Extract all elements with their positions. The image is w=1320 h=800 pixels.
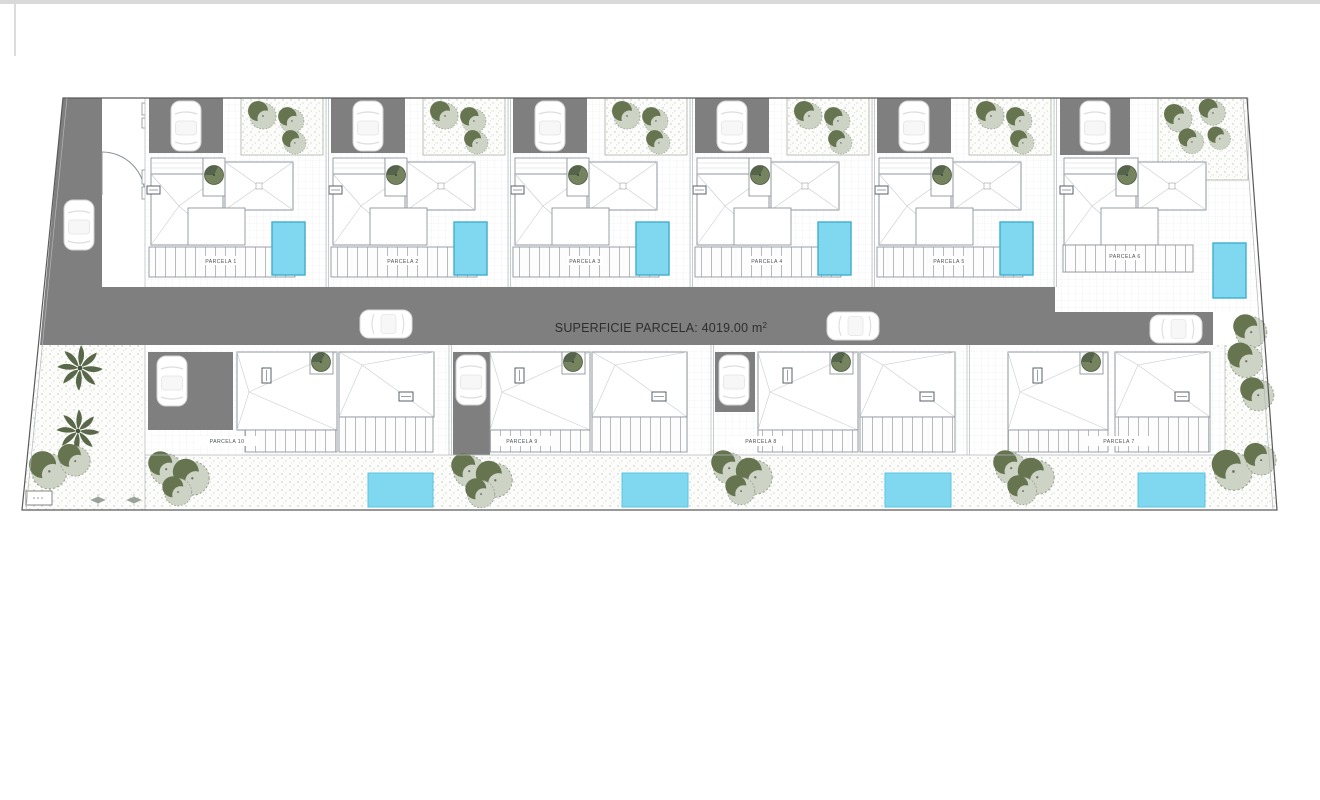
pool bbox=[885, 473, 951, 507]
parcel-1: PARCELA 1 bbox=[145, 98, 327, 287]
parcel-label: PARCELA 2 bbox=[387, 259, 418, 265]
parcel-3: PARCELA 3 bbox=[509, 98, 691, 287]
parcel-2: PARCELA 2 bbox=[327, 98, 509, 287]
gate-swing-arc bbox=[102, 152, 145, 195]
page: SUPERFICIE PARCELA: 4019.00 m2 PARCELA 1… bbox=[0, 0, 1320, 800]
central-road bbox=[145, 287, 1055, 345]
terrace-deck bbox=[1115, 417, 1210, 452]
parcel-label: PARCELA 1 bbox=[205, 259, 236, 265]
car-icon bbox=[1150, 315, 1202, 343]
parcel-label: PARCELA 8 bbox=[745, 439, 776, 445]
parcel-label: PARCELA 5 bbox=[933, 259, 964, 265]
parcel-label: PARCELA 7 bbox=[1103, 439, 1134, 445]
terrace-deck bbox=[860, 417, 955, 452]
site-plan: SUPERFICIE PARCELA: 4019.00 m2 PARCELA 1… bbox=[0, 0, 1320, 800]
pool bbox=[368, 473, 433, 507]
road-area-label: SUPERFICIE PARCELA: 4019.00 m2 bbox=[555, 321, 768, 335]
utility-box bbox=[26, 491, 52, 505]
pool bbox=[1213, 243, 1246, 298]
car-icon bbox=[64, 200, 94, 250]
parcel-label: PARCELA 6 bbox=[1109, 254, 1140, 260]
parcel-label: PARCELA 3 bbox=[569, 259, 600, 265]
parcel-label: PARCELA 4 bbox=[751, 259, 782, 265]
terrace-deck bbox=[339, 417, 433, 452]
car-icon bbox=[827, 312, 879, 340]
parcel-label: PARCELA 10 bbox=[210, 439, 245, 445]
parcel-label: PARCELA 9 bbox=[506, 439, 537, 445]
pool bbox=[622, 473, 688, 507]
car-icon bbox=[360, 310, 412, 338]
parcel-4: PARCELA 4 bbox=[691, 98, 873, 287]
terrace-deck bbox=[592, 417, 687, 452]
pool bbox=[1138, 473, 1205, 507]
parcel-6: PARCELA 6 bbox=[1055, 98, 1263, 312]
parcel-5: PARCELA 5 bbox=[873, 98, 1055, 287]
